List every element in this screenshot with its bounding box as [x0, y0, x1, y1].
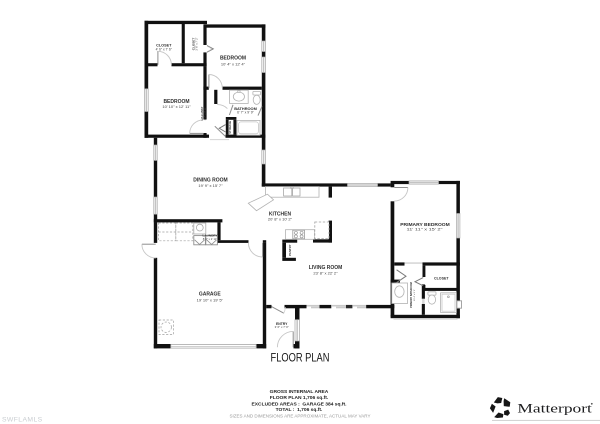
svg-text:CLOSET: CLOSET	[434, 277, 449, 281]
svg-text:STORAGE: STORAGE	[228, 121, 232, 134]
svg-text:10' 10" x 12' 11": 10' 10" x 12' 11"	[162, 104, 191, 109]
svg-text:EXCLUDED AREAS : GARAGE 384 s: EXCLUDED AREAS : GARAGE 384 sq.ft.	[252, 402, 348, 408]
svg-text:LAUNDRY: LAUNDRY	[202, 233, 218, 237]
svg-text:10' 4" x 5' 1": 10' 4" x 5' 1"	[414, 289, 416, 301]
svg-text:3' 6" x 7' 2": 3' 6" x 7' 2"	[195, 37, 199, 50]
svg-text:4' 6" x 7' 6": 4' 6" x 7' 6"	[156, 48, 173, 52]
svg-text:20' 8" x 10' 2": 20' 8" x 10' 2"	[268, 217, 293, 222]
svg-text:FLOOR PLAN 1,706 sq.ft.: FLOOR PLAN 1,706 sq.ft.	[270, 395, 329, 401]
svg-text:Matterport: Matterport	[517, 400, 592, 415]
svg-text:6' 7" x 9' 9": 6' 7" x 9' 9"	[237, 110, 255, 114]
svg-text:19' 9" x 15' 7": 19' 9" x 15' 7"	[198, 183, 223, 188]
svg-text:19' 10" x 19' 5": 19' 10" x 19' 5"	[197, 297, 224, 302]
svg-text:SIZES AND DIMENSIONS ARE APPRO: SIZES AND DIMENSIONS ARE APPROXIMATE, AC…	[230, 413, 371, 418]
svg-text:SWFLAMLS: SWFLAMLS	[2, 417, 43, 424]
svg-text:11' 11" x 15' 2": 11' 11" x 15' 2"	[407, 227, 444, 232]
svg-text:23' 8" x 22' 2": 23' 8" x 22' 2"	[313, 271, 338, 276]
svg-text:3' 7" x 9' 11": 3' 7" x 9' 11"	[204, 107, 207, 121]
svg-text:PANTRY: PANTRY	[288, 244, 292, 256]
svg-text:GROSS INTERNAL AREA: GROSS INTERNAL AREA	[270, 389, 329, 395]
svg-text:10' 4" x 12' 4": 10' 4" x 12' 4"	[221, 61, 246, 66]
svg-text:8' 6" x 2' 11": 8' 6" x 2' 11"	[203, 237, 218, 241]
svg-text:3' 6" x 7' 0": 3' 6" x 7' 0"	[275, 325, 289, 329]
svg-text:FLOOR PLAN: FLOOR PLAN	[271, 351, 330, 364]
svg-text:PRIMARY BATHROOM: PRIMARY BATHROOM	[410, 282, 413, 307]
svg-text:TOTAL : 1,706 sq.ft.: TOTAL : 1,706 sq.ft.	[276, 407, 323, 413]
